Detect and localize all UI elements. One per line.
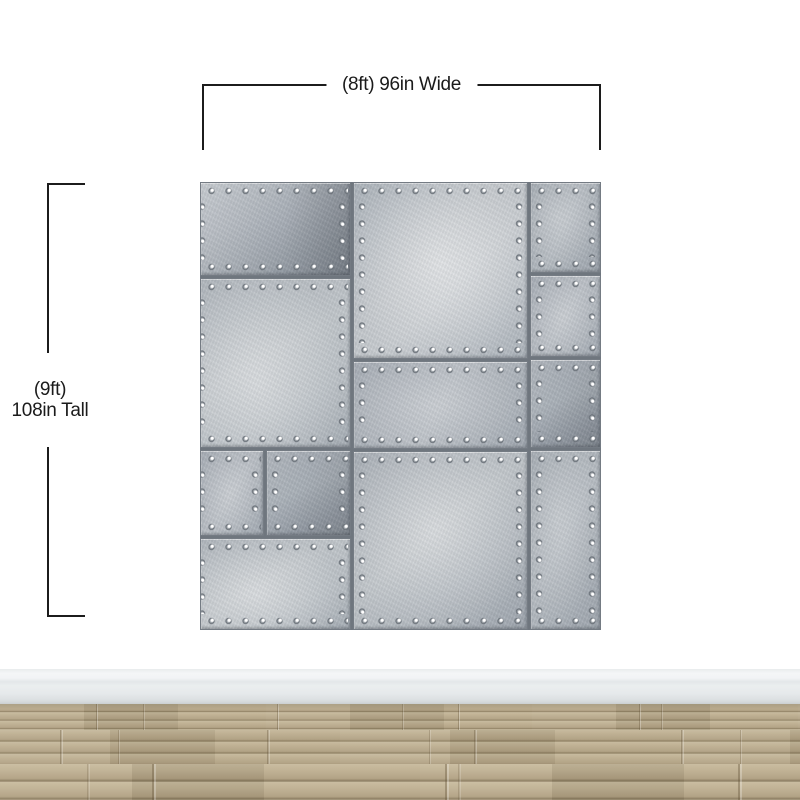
rivet-col-right bbox=[336, 554, 348, 614]
rivet-row-bottom bbox=[203, 521, 261, 533]
metal-plates-wall-mural bbox=[200, 182, 601, 630]
metal-plate-5 bbox=[200, 538, 351, 630]
rivet-col-right bbox=[586, 198, 598, 257]
rivet-col-right bbox=[336, 198, 348, 260]
rivet-row-bottom bbox=[356, 344, 525, 356]
rivet-row-top bbox=[203, 281, 348, 293]
rivet-row-top bbox=[269, 453, 348, 465]
rivet-row-top bbox=[533, 185, 598, 197]
rivet-col-right bbox=[513, 377, 525, 433]
rivet-col-right bbox=[586, 291, 598, 341]
rivet-row-top bbox=[533, 278, 598, 290]
rivet-col-right bbox=[586, 466, 598, 614]
width-dimension-label: (8ft) 96in Wide bbox=[326, 71, 477, 99]
rivet-col-left bbox=[200, 554, 208, 614]
rivet-col-left bbox=[200, 294, 208, 432]
height-dimension-label-line1: (9ft) bbox=[12, 379, 89, 400]
rivet-col-right bbox=[336, 294, 348, 432]
rivet-row-top bbox=[356, 185, 525, 197]
rivet-col-left bbox=[356, 467, 368, 614]
metal-plate-7 bbox=[353, 361, 528, 449]
rivet-row-top bbox=[203, 185, 348, 197]
rivet-row-bottom bbox=[203, 261, 348, 273]
rivet-col-left bbox=[533, 466, 545, 614]
baseboard bbox=[0, 669, 800, 704]
height-dimension-label-line2: 108in Tall bbox=[12, 400, 89, 421]
rivet-row-top bbox=[533, 453, 598, 465]
floor-plank-band-near bbox=[0, 764, 800, 800]
rivet-col-left bbox=[533, 198, 545, 257]
metal-plate-4 bbox=[266, 450, 351, 536]
metal-plate-12 bbox=[530, 450, 601, 630]
metal-plate-8 bbox=[353, 451, 528, 630]
rivet-row-bottom bbox=[533, 342, 598, 354]
height-dimension-label: (9ft)108in Tall bbox=[6, 353, 95, 447]
rivet-col-left bbox=[533, 291, 545, 341]
room-scene: (8ft) 96in Wide (9ft)108in Tall bbox=[0, 0, 800, 800]
rivet-col-right bbox=[336, 466, 348, 520]
wood-floor bbox=[0, 704, 800, 800]
rivet-col-right bbox=[586, 375, 598, 432]
rivet-col-left bbox=[356, 377, 368, 433]
metal-plate-11 bbox=[530, 359, 601, 448]
rivet-col-left bbox=[200, 466, 208, 520]
rivet-col-right bbox=[513, 467, 525, 614]
floor-plank-band-far bbox=[0, 704, 800, 730]
rivet-row-top bbox=[203, 453, 261, 465]
rivet-row-top bbox=[203, 541, 348, 553]
rivet-col-left bbox=[356, 198, 368, 343]
metal-plate-6 bbox=[353, 182, 528, 359]
rivet-row-bottom bbox=[533, 433, 598, 445]
rivet-col-right bbox=[513, 198, 525, 343]
rivet-col-left bbox=[269, 466, 281, 520]
rivet-row-bottom bbox=[356, 615, 525, 627]
floor-plank-band-mid bbox=[0, 730, 800, 764]
metal-plate-1 bbox=[200, 182, 351, 276]
rivet-row-bottom bbox=[533, 258, 598, 270]
metal-plate-10 bbox=[530, 275, 601, 357]
rivet-row-bottom bbox=[533, 615, 598, 627]
rivet-row-bottom bbox=[269, 521, 348, 533]
metal-plate-3 bbox=[200, 450, 264, 536]
rivet-row-top bbox=[533, 362, 598, 374]
rivet-row-top bbox=[356, 364, 525, 376]
rivet-row-bottom bbox=[356, 434, 525, 446]
rivet-row-bottom bbox=[203, 615, 348, 627]
rivet-col-left bbox=[533, 375, 545, 432]
height-dimension-line: (9ft)108in Tall bbox=[47, 183, 85, 617]
rivet-col-right bbox=[249, 466, 261, 520]
metal-plate-2 bbox=[200, 278, 351, 448]
metal-plate-9 bbox=[530, 182, 601, 273]
rivet-col-left bbox=[200, 198, 208, 260]
rivet-row-top bbox=[356, 454, 525, 466]
width-dimension-line: (8ft) 96in Wide bbox=[202, 84, 601, 150]
rivet-row-bottom bbox=[203, 433, 348, 445]
